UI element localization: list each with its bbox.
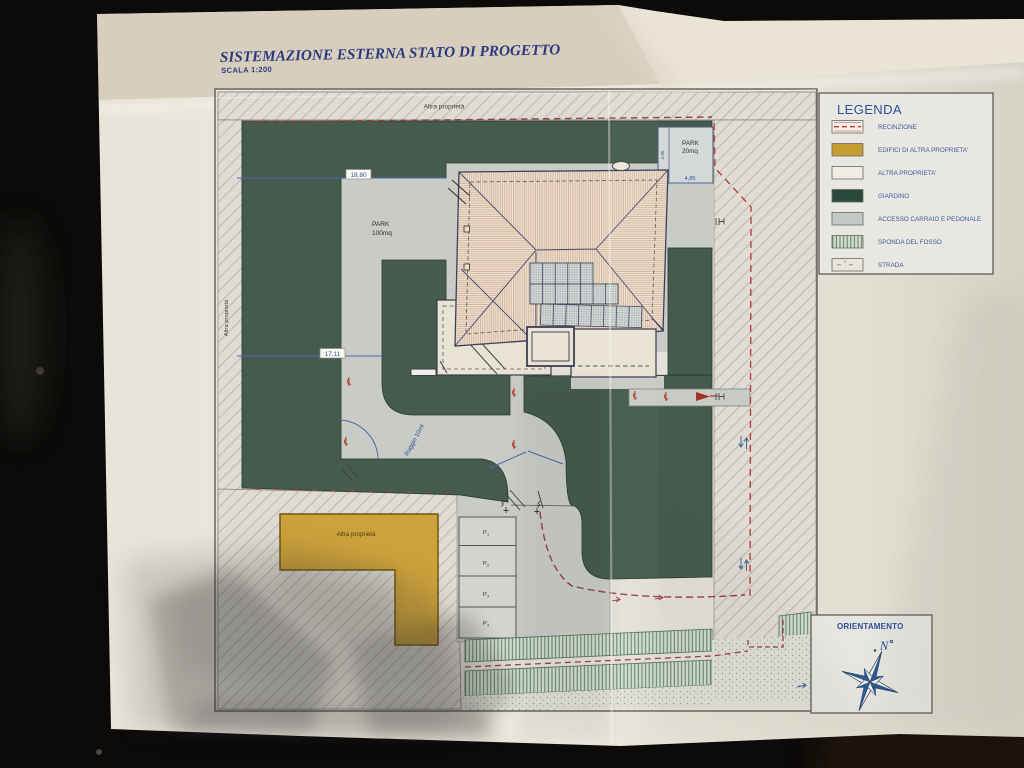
svg-text:20mq: 20mq — [682, 148, 698, 155]
svg-text:Altra proprietà: Altra proprietà — [224, 299, 230, 336]
svg-text:Altra proprietà: Altra proprietà — [337, 531, 376, 538]
svg-text:SPONDA DEL FOSSO: SPONDA DEL FOSSO — [878, 239, 942, 246]
svg-text:4,85: 4,85 — [660, 150, 665, 159]
svg-text:RECINZIONE: RECINZIONE — [878, 124, 917, 131]
svg-text:SCALA 1:200: SCALA 1:200 — [221, 65, 272, 75]
svg-text:4,85: 4,85 — [685, 176, 696, 182]
svg-text:Altra proprietà: Altra proprietà — [424, 104, 465, 111]
svg-text:2: 2 — [487, 564, 489, 568]
svg-text:N: N — [879, 639, 889, 653]
svg-text:PARK: PARK — [682, 140, 700, 147]
svg-text:1: 1 — [487, 533, 489, 537]
svg-text:ALTRA PROPRIETA': ALTRA PROPRIETA' — [878, 170, 936, 177]
svg-text:4: 4 — [487, 624, 489, 628]
svg-text:EDIFICI DI ALTRA PROPRIETA': EDIFICI DI ALTRA PROPRIETA' — [878, 147, 968, 154]
svg-text:17,11: 17,11 — [325, 351, 341, 358]
svg-text:PARK: PARK — [372, 221, 390, 228]
svg-text:100mq: 100mq — [372, 230, 392, 237]
svg-text:3: 3 — [487, 595, 489, 599]
svg-text:18,80: 18,80 — [351, 172, 367, 179]
svg-text:GIARDINO: GIARDINO — [878, 193, 909, 200]
svg-text:STRADA: STRADA — [878, 262, 904, 269]
svg-text:LEGENDA: LEGENDA — [837, 102, 902, 117]
svg-text:ACCESSO CARRAIO E PEDONALE: ACCESSO CARRAIO E PEDONALE — [878, 216, 981, 223]
